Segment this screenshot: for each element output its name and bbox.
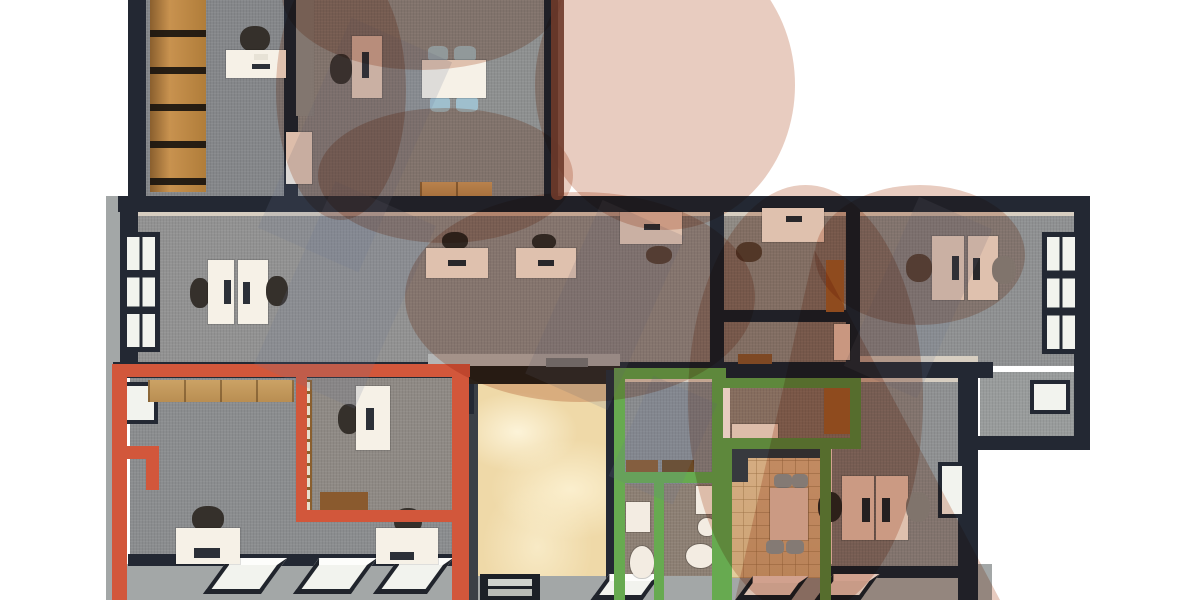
desk (176, 528, 240, 564)
monitor (252, 64, 270, 69)
office-chair (190, 278, 210, 308)
red-outline-inner-bottom (296, 510, 466, 522)
monitor (243, 282, 250, 304)
floor-entry-hall (478, 384, 610, 576)
door-mat (320, 492, 368, 510)
office-chair (240, 26, 270, 52)
watermark-dark-edge (551, 0, 564, 200)
toilet (630, 546, 654, 578)
window-office-c-right (1042, 232, 1080, 354)
desk (356, 386, 390, 450)
red-outline-right (452, 364, 469, 600)
wall-top-left-outer (128, 0, 146, 202)
green-outline-vestibule-left (614, 368, 625, 600)
entry-door-step (488, 589, 532, 596)
monitor (366, 408, 374, 430)
wall-annex-bottom (958, 436, 1090, 450)
monitor (224, 280, 231, 304)
floor-plan-render (0, 0, 1200, 600)
cabinet-row (148, 380, 294, 402)
red-outline-left (112, 364, 127, 600)
window-right-annex (1030, 380, 1070, 414)
red-outline-step-b (146, 446, 159, 490)
sink (626, 502, 650, 532)
watermark-blob (815, 185, 1025, 325)
bookshelf (150, 0, 206, 192)
laptop (194, 548, 220, 558)
entry-door-step (488, 579, 532, 586)
desk (208, 260, 234, 324)
window-open-office-left (122, 232, 160, 352)
laptop (390, 552, 414, 560)
toilet (686, 544, 714, 568)
desk-papers (254, 54, 268, 60)
red-outline-inner-left (296, 374, 307, 520)
desk (376, 528, 438, 564)
desk (238, 260, 268, 324)
entry-door (480, 574, 540, 600)
